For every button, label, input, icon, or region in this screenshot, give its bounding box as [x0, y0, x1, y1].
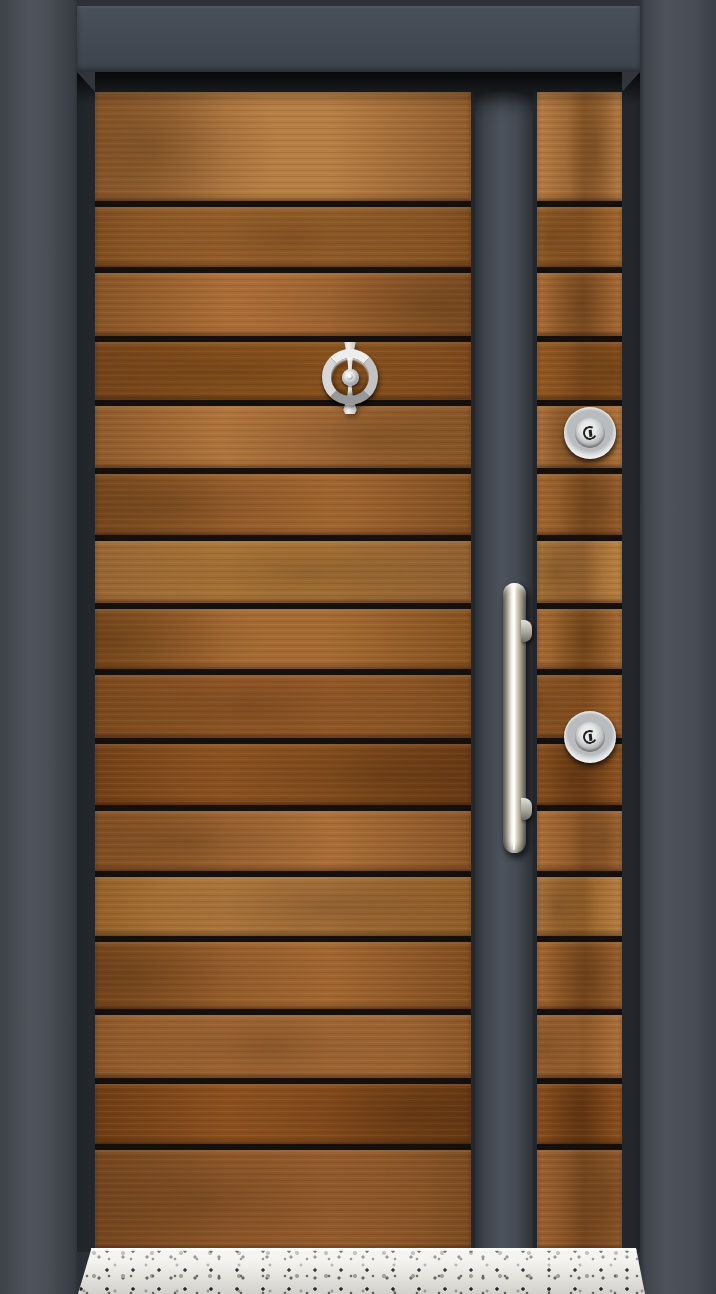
wood-plank	[95, 675, 471, 738]
wood-plank	[537, 1015, 622, 1078]
wood-plank	[95, 92, 471, 201]
wood-panel-right	[537, 92, 622, 1250]
keyhole-icon	[581, 424, 599, 442]
wood-plank	[95, 744, 471, 805]
wood-plank	[95, 474, 471, 535]
door-frame-right-jamb	[640, 0, 716, 1294]
wood-plank	[95, 1150, 471, 1250]
wood-plank	[95, 1015, 471, 1078]
wood-plank	[537, 474, 622, 535]
wood-plank	[537, 609, 622, 669]
keyhole-icon	[581, 728, 599, 746]
door-pull-handle	[503, 583, 526, 853]
wood-plank	[537, 1084, 622, 1144]
wood-plank	[537, 541, 622, 603]
wood-plank	[95, 877, 471, 936]
peephole-glass-icon	[347, 374, 353, 380]
door-leaf	[77, 72, 640, 1252]
wood-plank	[95, 811, 471, 871]
wood-plank	[95, 273, 471, 336]
door-frame-header	[77, 6, 640, 72]
wood-plank	[95, 406, 471, 468]
wood-plank	[537, 1150, 622, 1250]
wood-plank	[95, 342, 471, 400]
wood-plank	[537, 273, 622, 336]
peephole-lens	[342, 369, 359, 386]
wood-plank	[95, 942, 471, 1009]
handle-mount-top	[521, 620, 532, 642]
wood-plank	[95, 207, 471, 267]
lock-cylinder-upper	[564, 407, 616, 459]
wood-plank	[95, 609, 471, 669]
wood-plank	[537, 877, 622, 936]
wood-plank	[95, 1084, 471, 1144]
wood-plank	[537, 942, 622, 1009]
wood-plank	[537, 92, 622, 201]
handle-mount-bottom	[521, 798, 532, 820]
wood-panel-left	[95, 92, 471, 1250]
door-knocker	[316, 342, 384, 414]
terrazzo-threshold	[78, 1248, 645, 1294]
security-door-photo	[0, 0, 716, 1294]
wood-plank	[95, 541, 471, 603]
door-frame-left-jamb	[0, 0, 77, 1294]
wood-plank	[537, 342, 622, 400]
wood-plank	[537, 207, 622, 267]
lock-cylinder-lower	[564, 711, 616, 763]
wood-plank	[537, 811, 622, 871]
